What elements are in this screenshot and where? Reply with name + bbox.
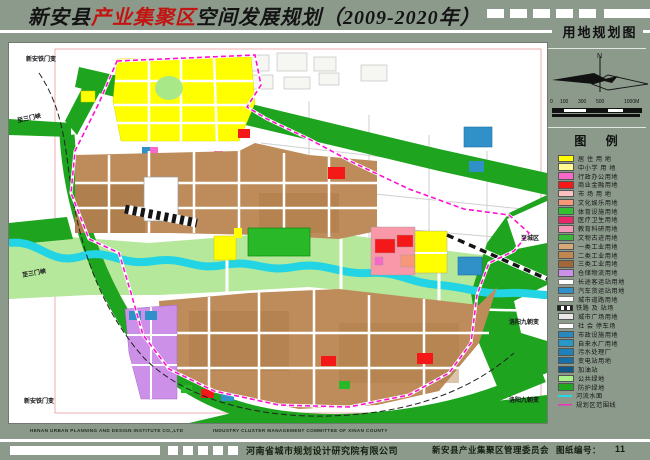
legend-swatch [558,279,574,285]
legend-label: 河流水面 [576,391,603,400]
legend-item: 加油站 [558,365,648,374]
legend-item: 商业金融用地 [558,180,648,189]
legend-label: 铁路 及 站场 [576,303,614,312]
scale-bar [552,108,642,113]
legend-swatch [558,251,574,259]
footer-sheet-number: 11 [615,444,626,454]
legend-label: 中小学 用 地 [578,163,616,172]
legend-item: 污水处理厂 [558,348,648,357]
legend-item: 城市道路用地 [558,295,648,304]
legend-item: 汽车货运站用地 [558,286,648,295]
north-letter: N [597,53,602,60]
sidebar-separator [548,127,646,128]
sheet-name: 用地规划图 [556,22,644,41]
legend-swatch [558,155,574,163]
legend-label: 二类工业用地 [578,251,618,260]
park-green [155,76,183,100]
legend-swatch [558,216,574,224]
legend-swatch [558,331,574,339]
legend-label: 居 住 用 地 [578,154,611,163]
compass-rose: N [548,50,648,96]
legend-swatch [558,313,574,321]
legend-item: 社 会 停车场 [558,321,648,330]
legend-swatch [558,260,574,268]
legend-swatch [558,383,574,391]
legend-label: 教育科研用地 [578,224,618,233]
legend-label: 体育设施用地 [578,207,618,216]
legend-swatch [558,172,574,180]
commercial-cluster [371,227,447,275]
legend-swatch [558,269,574,277]
legend-swatch [558,225,574,233]
footer-company-left: 河南省城市规划设计研究院有限公司 [246,444,398,457]
commercial-parcel [417,353,433,364]
footer-deco-square [198,446,208,455]
commercial-parcel [328,167,345,179]
legend-swatch [558,234,574,242]
footer-rule [0,439,650,442]
footer-english-right: INDUSTRY CLUSTER MANAGEMENT COMMITTEE OF… [213,428,388,433]
footer-english-left: HENAN URBAN PLANNING AND DESIGN INSTITUT… [30,428,183,433]
legend-label: 市 场 用 地 [578,189,611,198]
map-canvas [9,43,547,423]
legend-item: 一类工业用地 [558,242,648,251]
legend-item: 市 场 用 地 [558,189,648,198]
legend-label: 公共绿地 [578,374,605,383]
legend-swatch [558,163,574,171]
scale-tick-label: 300 [578,99,586,105]
legend-swatch [558,348,574,356]
legend-swatch [558,287,574,295]
legend-item: 中小学 用 地 [558,163,648,172]
footer-deco-square [228,446,238,455]
legend-item: 铁路 及 站场 [558,304,648,313]
legend-label: 一类工业用地 [578,242,618,251]
freight-station [458,257,482,275]
plan-poster: 新安县产业集聚区空间发展规划（2009-2020年） 用地规划图 [0,0,650,460]
sports-park [248,228,310,256]
legend-label: 三类工业用地 [578,259,618,268]
scale-tick-label: 100 [560,99,568,105]
title-highlight: 产业集聚区 [91,7,196,29]
industrial-north [75,143,377,239]
legend-label: 商业金融用地 [578,180,618,189]
legend-swatch [558,296,574,302]
title-rule-right [643,30,650,33]
legend-label: 汽车货运站用地 [578,286,625,295]
legend-swatch [558,402,572,408]
legend-swatch [558,366,574,374]
legend-item: 城市广场用地 [558,312,648,321]
title-bar: 新安县产业集聚区空间发展规划（2009-2020年） [0,0,650,30]
legend-label: 加油站 [578,365,598,374]
legend-swatch [558,375,574,383]
legend-item: 公共绿地 [558,374,648,383]
legend-item: 变电站用地 [558,356,648,365]
legend-swatch [558,190,574,198]
legend-swatch [558,357,574,365]
scale-labels: 01003005001000M [550,99,644,106]
title-suffix: 空间发展规划（2009-2020年） [196,7,481,29]
legend-item: 仓储物流用地 [558,268,648,277]
legend-swatch [558,199,574,207]
scale-bar-solid [552,114,640,117]
sidebar-separator [548,48,646,49]
legend-swatch [558,207,574,215]
title-prefix: 新安县 [28,7,91,29]
deco-square [533,9,550,18]
scale-tick-label: 500 [596,99,604,105]
legend-label: 城市道路用地 [578,295,618,304]
footer-deco-square [213,446,223,455]
legend-item: 居 住 用 地 [558,154,648,163]
legend-item: 行政办公用地 [558,172,648,181]
legend-label: 文化娱乐用地 [578,198,618,207]
legend-label: 防护绿地 [578,383,605,392]
legend-title: 图 例 [560,132,640,149]
legend-label: 城市广场用地 [578,312,618,321]
deco-bar [604,9,650,18]
legend-label: 变电站用地 [578,356,611,365]
footer-deco-square [168,446,178,455]
legend-label: 污水处理厂 [578,347,611,356]
municipal-parcel [145,311,157,320]
legend-swatch [558,181,574,189]
green-parcel [339,381,350,389]
legend-item: 防护绿地 [558,383,648,392]
deco-square [487,9,504,18]
commercial-parcel [321,356,336,366]
legend-item: 河流水面 [558,392,648,401]
map-frame: 新安铁门变至三门峡至三门峡新安铁门变至城区洛阳九朝变洛阳九朝变 [8,42,548,424]
commercial-parcel [238,129,250,138]
legend-panel: 居 住 用 地中小学 用 地行政办公用地商业金融用地市 场 用 地文化娱乐用地体… [558,154,648,409]
legend-label: 行政办公用地 [578,172,618,181]
legend-item: 体育设施用地 [558,207,648,216]
legend-item: 市政设施用地 [558,330,648,339]
footer-deco-bar [10,446,160,455]
legend-item: 文物古迹用地 [558,233,648,242]
footer-sheet-label: 图纸编号： [556,444,601,456]
legend-item: 长途客运站用地 [558,277,648,286]
legend-item: 自来水厂用地 [558,339,648,348]
title-rule [0,30,552,33]
legend-swatch [558,339,574,347]
legend-item: 三类工业用地 [558,260,648,269]
legend-swatch [558,323,574,329]
legend-swatch [558,306,572,310]
scale-tick-label: 1000M [624,99,639,105]
legend-swatch [558,243,574,251]
legend-label: 规划区范围线 [576,400,616,409]
legend-label: 市政设施用地 [578,330,618,339]
legend-item: 二类工业用地 [558,251,648,260]
legend-label: 长途客运站用地 [578,277,625,286]
legend-item: 规划区范围线 [558,400,648,409]
footer-company-right: 新安县产业集聚区管理委员会 [432,444,549,456]
footer-deco-square [183,446,193,455]
deco-square [510,9,527,18]
legend-label: 自来水厂用地 [578,339,618,348]
legend-label: 社 会 停车场 [578,321,616,330]
legend-item: 文化娱乐用地 [558,198,648,207]
legend-item: 教育科研用地 [558,224,648,233]
deco-square [579,9,596,18]
legend-swatch [558,393,572,399]
deco-square [556,9,573,18]
legend-label: 医疗卫生用地 [578,215,618,224]
legend-item: 医疗卫生用地 [558,216,648,225]
legend-label: 仓储物流用地 [578,268,618,277]
page-title: 新安县产业集聚区空间发展规划（2009-2020年） [28,1,481,30]
scale-tick-label: 0 [550,99,553,105]
legend-label: 文物古迹用地 [578,233,618,242]
